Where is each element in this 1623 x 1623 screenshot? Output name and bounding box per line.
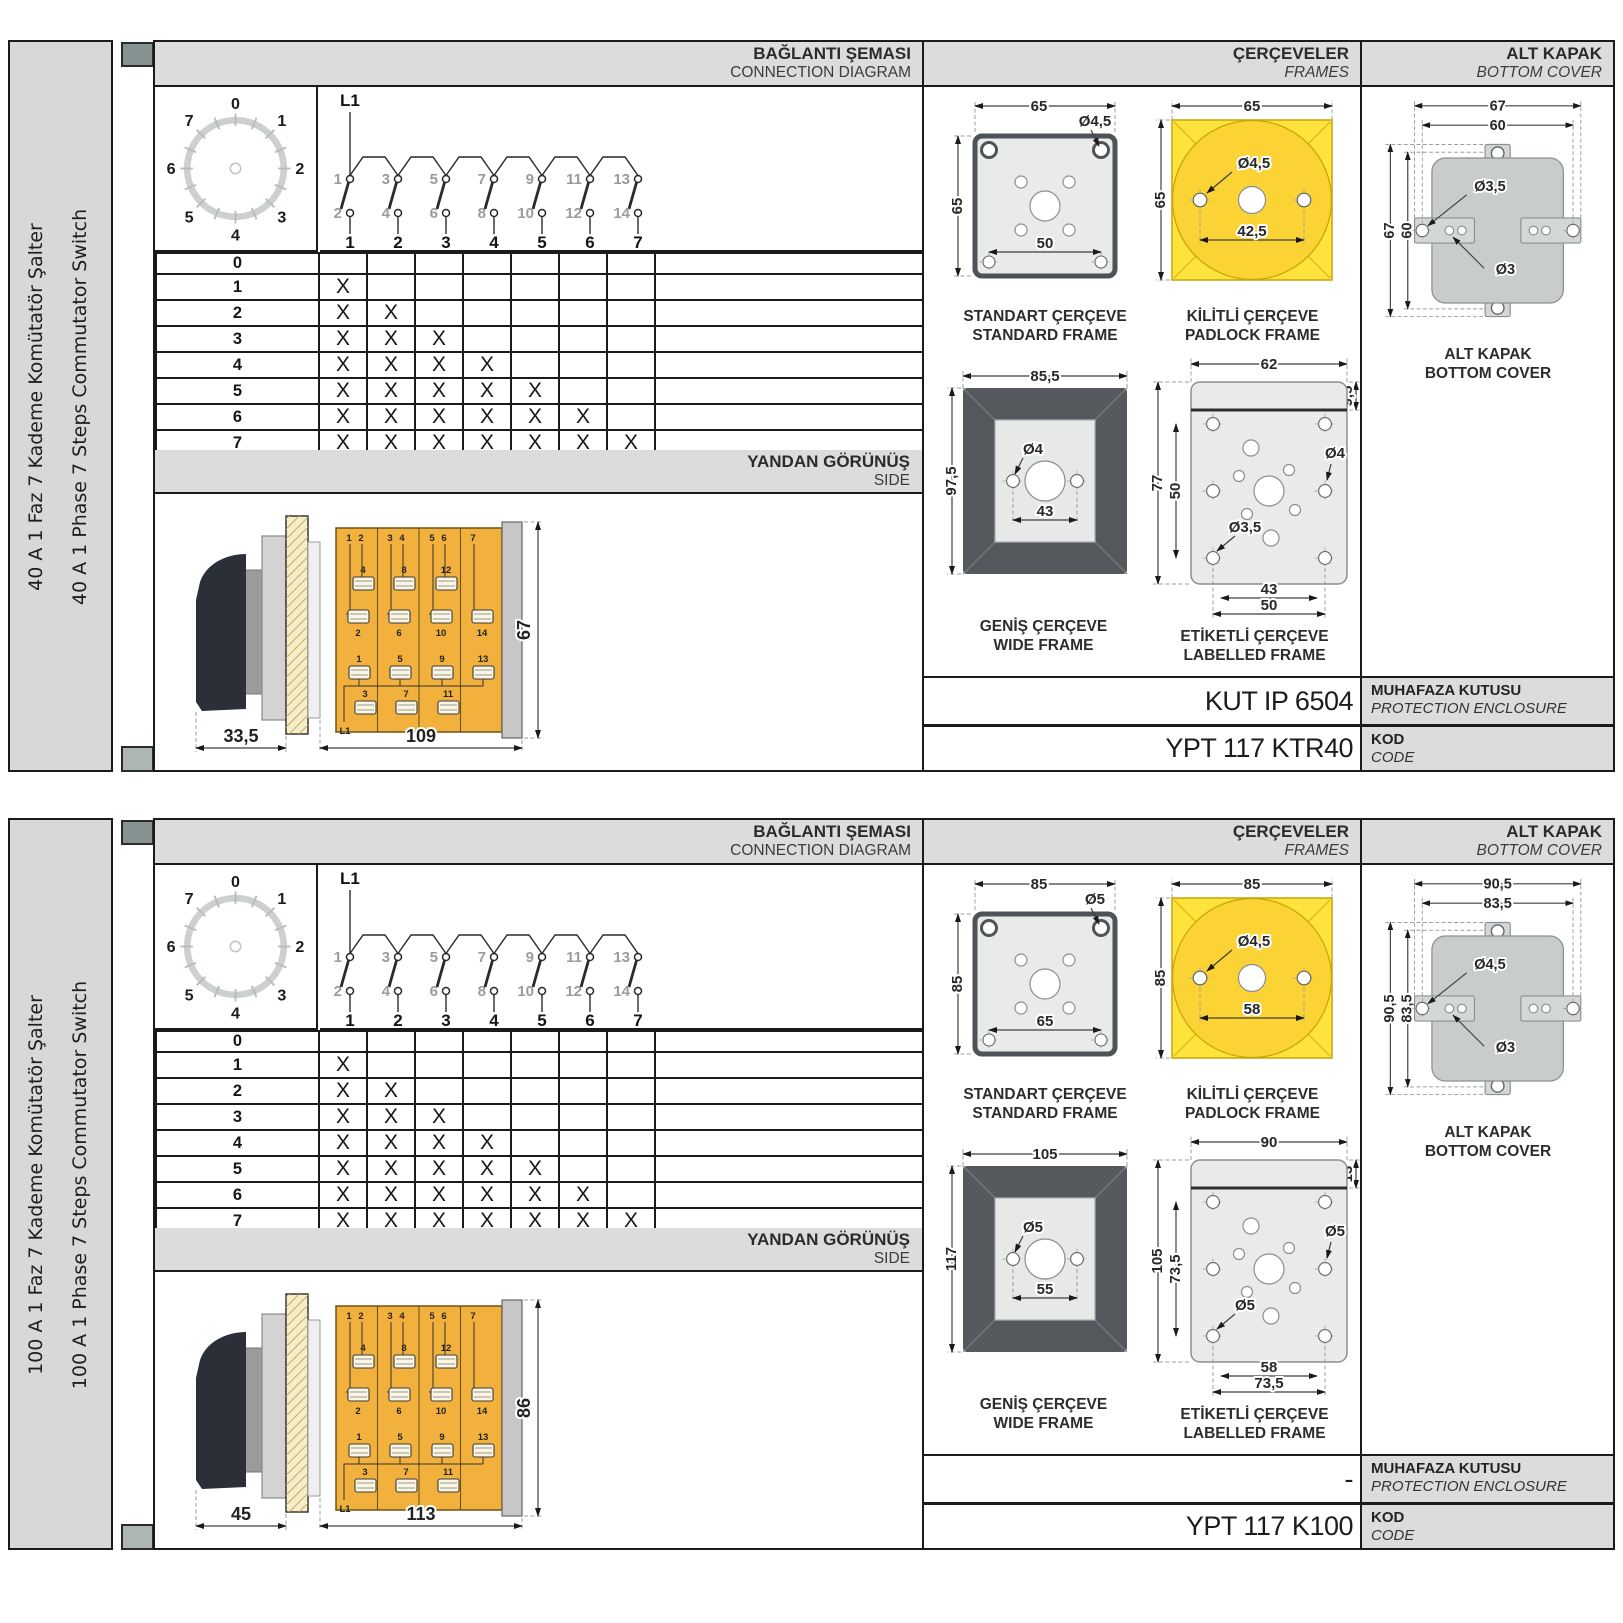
contact-mark-cell: [463, 1052, 511, 1078]
contact-number: 8: [478, 983, 486, 1000]
label-en: PROTECTION ENCLOSURE: [1371, 700, 1613, 718]
circuit-figure: L1 1 2 1: [320, 865, 920, 1027]
contact-number: 13: [613, 171, 630, 188]
contact-mark-cell: X: [511, 404, 559, 430]
protection-enclosure-value: -: [924, 1454, 1360, 1502]
header-title-tr: BAĞLANTI ŞEMASI: [155, 822, 911, 842]
svg-text:5: 5: [397, 1432, 403, 1443]
switch-table-row: 6XXXXXX: [156, 1182, 922, 1208]
hole-span-dim: 73,5: [1254, 1375, 1283, 1392]
frame-caption-tr: GENİŞ ÇERÇEVE: [941, 1395, 1146, 1414]
label-en: CODE: [1371, 749, 1613, 767]
switch-number: 4: [489, 1011, 499, 1027]
switch-pole: 7 8 4: [478, 949, 500, 1027]
header-title-tr: BAĞLANTI ŞEMASI: [155, 44, 911, 64]
body-height-dim: 67: [514, 620, 534, 640]
switch-table-row: 1X: [156, 274, 922, 300]
frame-caption-tr: STANDART ÇERÇEVE: [945, 307, 1145, 326]
svg-text:12: 12: [441, 1343, 452, 1354]
contact-number: 11: [566, 949, 582, 966]
connection-diagram-header: BAĞLANTI ŞEMASI CONNECTION DIAGRAM: [155, 820, 922, 865]
spacer-cell: [655, 1182, 922, 1208]
contact-mark-cell: [559, 253, 607, 274]
contact-mark-cell: X: [511, 1182, 559, 1208]
hole-span-dim: 65: [1037, 1013, 1054, 1030]
contact-mark-cell: [511, 1031, 559, 1052]
contact-mark-cell: X: [367, 1182, 415, 1208]
binding-tab-bottom: [121, 1524, 154, 1550]
frame-width-dim: 105: [1032, 1146, 1057, 1163]
knob-depth-dim: 45: [231, 1504, 251, 1524]
feed-label: L1: [340, 91, 360, 110]
svg-text:7: 7: [403, 1467, 408, 1478]
body-height-dim: 86: [514, 1398, 534, 1418]
contact-mark-cell: X: [319, 300, 367, 326]
product-title-english: 40 A 1 Phase 7 Steps Commutator Switch: [57, 46, 103, 768]
product-title-turkish: 100 A 1 Faz 7 Kademe Komütatör Şalter: [13, 824, 59, 1546]
label-tr: KOD: [1371, 730, 1613, 749]
header-title-en: BOTTOM COVER: [1362, 64, 1602, 82]
contact-mark-cell: X: [367, 300, 415, 326]
contact-mark-cell: [463, 300, 511, 326]
contact-mark-cell: [607, 1031, 655, 1052]
switch-number: 6: [585, 233, 594, 249]
contact-mark-cell: [607, 352, 655, 378]
cover-caption-tr: ALT KAPAK: [1372, 345, 1604, 364]
contact-mark-cell: [607, 326, 655, 352]
contact-mark-cell: [319, 1031, 367, 1052]
switch-table-row: 2XX: [156, 1078, 922, 1104]
pin-number: 2: [358, 1311, 363, 1322]
labelled-frame-block: 90 13 105 73,5: [1147, 1130, 1362, 1444]
step-label: 5: [156, 1156, 319, 1182]
contact-mark-cell: [559, 326, 607, 352]
hole-span-dim: 50: [1261, 597, 1278, 614]
contact-mark-cell: X: [319, 1104, 367, 1130]
frame-width-dim: 65: [1031, 98, 1048, 115]
body-length-dim: 113: [406, 1504, 435, 1524]
switch-pole: 9 10 5: [517, 949, 546, 1027]
protection-enclosure-value: KUT IP 6504: [924, 676, 1360, 724]
switch-table-row: 3XXX: [156, 1104, 922, 1130]
contact-mark-cell: [415, 1031, 463, 1052]
dial-position: 3: [277, 208, 286, 226]
switch-table-row: 0: [156, 1031, 922, 1052]
protection-enclosure-label: MUHAFAZA KUTUSU PROTECTION ENCLOSURE: [1362, 676, 1613, 724]
binding-tab-top: [121, 42, 154, 67]
contact-number: 3: [382, 171, 390, 188]
hole-diameter-label: Ø4,5: [1474, 957, 1505, 973]
contact-mark-cell: X: [463, 1156, 511, 1182]
circuit-cell: L1 1 2 1: [320, 87, 922, 252]
rotary-dial-cell: 0 1 2 3 4 5 6 7: [155, 865, 318, 1030]
switch-table-row: 3XXX: [156, 326, 922, 352]
contact-mark-cell: X: [367, 326, 415, 352]
switch-pole: 1 2 1: [334, 171, 355, 249]
pin-number: 7: [470, 533, 475, 544]
spacer-cell: [655, 1130, 922, 1156]
header-title-en: FRAMES: [924, 842, 1349, 860]
connection-diagram-header: BAĞLANTI ŞEMASI CONNECTION DIAGRAM: [155, 42, 922, 87]
svg-text:14: 14: [477, 1406, 488, 1417]
svg-text:3: 3: [362, 1467, 367, 1478]
frames-header: ÇERÇEVELER FRAMES: [924, 42, 1360, 87]
svg-text:7: 7: [403, 689, 408, 700]
svg-text:4: 4: [360, 565, 366, 576]
svg-text:3: 3: [362, 689, 367, 700]
switch-bezel: [262, 1314, 286, 1498]
frame-height-dim: 65: [949, 198, 966, 215]
contact-mark-cell: [367, 253, 415, 274]
product-title-english: 100 A 1 Phase 7 Steps Commutator Switch: [57, 824, 103, 1546]
contact-mark-cell: X: [559, 404, 607, 430]
spacer-cell: [655, 1156, 922, 1182]
contact-number: 10: [517, 983, 534, 1000]
binding-tab-top: [121, 820, 154, 845]
contact-mark-cell: [511, 326, 559, 352]
switch-knob: [196, 554, 246, 711]
switch-table-row: 5XXXXX: [156, 1156, 922, 1182]
step-label: 2: [156, 1078, 319, 1104]
contact-mark-cell: [559, 274, 607, 300]
header-title-en: BOTTOM COVER: [1362, 842, 1602, 860]
contact-number: 13: [613, 949, 630, 966]
contact-mark-cell: [367, 274, 415, 300]
cover-caption-tr: ALT KAPAK: [1372, 1123, 1604, 1142]
header-title-en: CONNECTION DIAGRAM: [155, 842, 911, 860]
pin-number: 4: [399, 533, 405, 544]
padlock-frame-block: 65 65 Ø4,5 42,5: [1150, 92, 1355, 346]
body-length-dim: 109: [406, 726, 436, 746]
switch-number: 3: [441, 1011, 450, 1027]
standard-frame-figure: 65 65 Ø4,5 50: [945, 92, 1145, 304]
step-label: 4: [156, 352, 319, 378]
contact-mark-cell: X: [367, 1130, 415, 1156]
circuit-figure: L1 1 2 1: [320, 87, 920, 249]
svg-text:14: 14: [477, 628, 488, 639]
svg-text:5: 5: [397, 654, 403, 665]
contact-number: 1: [334, 949, 342, 966]
hole-diameter-label: Ø4,5: [1238, 155, 1271, 172]
svg-text:9: 9: [439, 654, 444, 665]
svg-text:12: 12: [441, 565, 452, 576]
frame-caption-tr: KİLİTLİ ÇERÇEVE: [1150, 307, 1355, 326]
frame-caption-tr: ETİKETLİ ÇERÇEVE: [1147, 627, 1362, 646]
step-label: 3: [156, 326, 319, 352]
standard-frame-block: 85 85 Ø5 65 STANDAR: [945, 870, 1145, 1124]
cover-caption-en: BOTTOM COVER: [1372, 364, 1604, 383]
switch-pole: 11 12 6: [565, 171, 594, 249]
pin-number: 5: [429, 533, 435, 544]
spacer-cell: [655, 1078, 922, 1104]
hole-diameter-label: Ø3: [1496, 262, 1515, 278]
header-title-tr: ÇERÇEVELER: [924, 822, 1349, 842]
svg-text:6: 6: [396, 628, 401, 639]
contact-mark-cell: [415, 253, 463, 274]
contact-mark-cell: [511, 1052, 559, 1078]
step-label: 6: [156, 1182, 319, 1208]
contact-mark-cell: X: [415, 404, 463, 430]
switch-table-row: 6XXXXXX: [156, 404, 922, 430]
contact-mark-cell: [511, 253, 559, 274]
pin-number: 2: [358, 533, 363, 544]
svg-text:8: 8: [401, 565, 406, 576]
dial-position: 6: [167, 160, 176, 178]
switch-number: 5: [537, 1011, 546, 1027]
frame-height-dim: 117: [943, 1247, 960, 1271]
contact-mark-cell: X: [463, 378, 511, 404]
step-label: 3: [156, 1104, 319, 1130]
contact-mark-cell: [415, 1052, 463, 1078]
pin-number: 1: [346, 1311, 352, 1322]
contact-mark-cell: [607, 1156, 655, 1182]
switch-pole: 9 10 5: [517, 171, 546, 249]
label-tr: MUHAFAZA KUTUSU: [1371, 681, 1613, 700]
svg-text:2: 2: [355, 1406, 360, 1417]
dial-position: 3: [277, 986, 286, 1004]
frame-width-dim: 90: [1261, 1134, 1278, 1151]
pin-number: 5: [429, 1311, 435, 1322]
frame-caption-en: LABELLED FRAME: [1147, 646, 1362, 665]
contact-mark-cell: X: [415, 326, 463, 352]
contact-mark-cell: [607, 1104, 655, 1130]
contact-mark-cell: [559, 1031, 607, 1052]
contact-mark-cell: [607, 1078, 655, 1104]
frame-height-dim: 65: [1152, 192, 1169, 209]
frames-header: ÇERÇEVELER FRAMES: [924, 820, 1360, 865]
contact-mark-cell: [559, 1078, 607, 1104]
labelled-frame-figure: 90 13 105 73,5: [1147, 1130, 1362, 1402]
side-view-figure: 1 2 3 4 5 6 7 4 8 12: [163, 1276, 593, 1540]
contact-number: 6: [430, 983, 438, 1000]
spacer-cell: [655, 1031, 922, 1052]
contact-number: 14: [613, 983, 630, 1000]
frame-width-dim: 85,5: [1030, 368, 1059, 385]
hole-span-dim: 55: [1037, 1281, 1054, 1298]
switch-pole: 5 6 3: [430, 949, 451, 1027]
dial-position: 0: [231, 873, 240, 891]
spacer-cell: [655, 352, 922, 378]
svg-text:9: 9: [439, 1432, 444, 1443]
contact-number: 8: [478, 205, 486, 222]
label-tr: MUHAFAZA KUTUSU: [1371, 1459, 1613, 1478]
product-code-value: YPT 117 K100: [924, 1502, 1360, 1548]
contact-mark-cell: X: [319, 1078, 367, 1104]
dial-position: 2: [295, 938, 304, 956]
contact-mark-cell: X: [511, 378, 559, 404]
contact-mark-cell: [463, 1078, 511, 1104]
contact-mark-cell: [559, 352, 607, 378]
contact-mark-cell: [415, 300, 463, 326]
contact-mark-cell: [463, 1031, 511, 1052]
switch-number: 2: [393, 233, 402, 249]
frame-width-dim: 65: [1244, 98, 1261, 115]
spacer-cell: [655, 300, 922, 326]
contact-mark-cell: [367, 1031, 415, 1052]
contact-number: 10: [517, 205, 534, 222]
wide-frame-block: 85,5 97,5 Ø4 43: [941, 362, 1146, 656]
header-title-en: SIDE: [155, 472, 910, 490]
bottom-cover-block: 90,5 83,5 90,5 83,5: [1372, 870, 1604, 1162]
dial-position: 6: [167, 938, 176, 956]
svg-text:11: 11: [443, 1467, 454, 1478]
contact-mark-cell: [607, 1130, 655, 1156]
pin-number: 3: [387, 1311, 392, 1322]
pin-number: 4: [399, 1311, 405, 1322]
frame-width-dim: 85: [1244, 876, 1261, 893]
pin-number: 6: [441, 533, 446, 544]
contact-mark-cell: X: [463, 404, 511, 430]
contact-mark-cell: X: [367, 404, 415, 430]
switch-number: 2: [393, 1011, 402, 1027]
dial-position: 7: [185, 112, 194, 130]
contact-mark-cell: [415, 1078, 463, 1104]
frame-height-dim: 97,5: [943, 466, 960, 495]
hole-diameter-label: Ø4,5: [1238, 933, 1271, 950]
frame-caption-tr: KİLİTLİ ÇERÇEVE: [1150, 1085, 1355, 1104]
svg-text:13: 13: [478, 654, 489, 665]
frame-width-dim: 85: [1031, 876, 1048, 893]
contact-mark-cell: [463, 1104, 511, 1130]
contact-number: 5: [430, 949, 438, 966]
panel-content: BAĞLANTI ŞEMASI CONNECTION DIAGRAM ÇERÇE…: [153, 818, 1615, 1550]
step-label: 0: [156, 1031, 319, 1052]
frame-caption-en: WIDE FRAME: [941, 636, 1146, 655]
hole-span-dim: 43: [1037, 503, 1054, 520]
hole-diameter-label: Ø4: [1023, 441, 1044, 458]
hole-diameter-label: Ø4: [1325, 445, 1346, 462]
contact-mark-cell: [559, 378, 607, 404]
dial-position: 2: [295, 160, 304, 178]
product-panel: 100 A 1 Faz 7 Kademe Komütatör Şalter 10…: [8, 818, 1615, 1550]
header-title-tr: YANDAN GÖRÜNÜŞ: [155, 452, 910, 472]
contact-mark-cell: X: [463, 1130, 511, 1156]
switch-number: 7: [633, 1011, 642, 1027]
contact-mark-cell: X: [415, 1182, 463, 1208]
contact-mark-cell: X: [367, 352, 415, 378]
binding-tab-bottom: [121, 746, 154, 772]
contact-mark-cell: [511, 300, 559, 326]
contact-number: 6: [430, 205, 438, 222]
switch-number: 1: [345, 1011, 354, 1027]
hole-diameter-label: Ø3: [1496, 1040, 1515, 1056]
contact-mark-cell: [607, 253, 655, 274]
frame-caption-en: WIDE FRAME: [941, 1414, 1146, 1433]
contact-mark-cell: X: [463, 1182, 511, 1208]
dial-position: 7: [185, 890, 194, 908]
contact-mark-cell: [511, 1130, 559, 1156]
header-title-en: CONNECTION DIAGRAM: [155, 64, 911, 82]
svg-text:6: 6: [396, 1406, 401, 1417]
switch-number: 1: [345, 233, 354, 249]
column-divider: [922, 820, 924, 1548]
side-view-header: YANDAN GÖRÜNÜŞ SIDE: [155, 1228, 922, 1272]
svg-text:2: 2: [355, 628, 360, 639]
contact-mark-cell: [319, 253, 367, 274]
switch-pole: 1 2 1: [334, 949, 355, 1027]
contact-mark-cell: [607, 1182, 655, 1208]
contact-mark-cell: X: [415, 352, 463, 378]
contact-state-table: 01X2XX3XXX4XXXX5XXXXX6XXXXXX7XXXXXXX: [155, 1030, 922, 1235]
spacer-cell: [655, 378, 922, 404]
contact-mark-cell: [367, 1052, 415, 1078]
contact-mark-cell: [607, 300, 655, 326]
contact-mark-cell: X: [463, 352, 511, 378]
contact-number: 12: [565, 205, 582, 222]
step-label: 4: [156, 1130, 319, 1156]
wide-frame-figure: 105 117 Ø5 55: [941, 1140, 1146, 1392]
bottom-cover-figure: 90,5 83,5 90,5 83,5: [1372, 870, 1604, 1120]
svg-text:11: 11: [443, 689, 454, 700]
code-label: KOD CODE: [1362, 1502, 1613, 1548]
hole-span-dim: 43: [1261, 581, 1278, 598]
spacer-cell: [655, 404, 922, 430]
contact-mark-cell: X: [319, 1130, 367, 1156]
contact-mark-cell: X: [415, 378, 463, 404]
contact-number: 7: [478, 949, 486, 966]
contact-number: 7: [478, 171, 486, 188]
frame-caption-en: LABELLED FRAME: [1147, 1424, 1362, 1443]
contact-mark-cell: X: [415, 1104, 463, 1130]
feed-label: L1: [339, 1504, 351, 1515]
contact-mark-cell: X: [511, 1156, 559, 1182]
padlock-frame-figure: 65 65 Ø4,5 42,5: [1150, 92, 1355, 304]
bottom-cover-figure: 67 60 67 60: [1372, 92, 1604, 342]
switch-table-row: 1X: [156, 1052, 922, 1078]
header-title-en: SIDE: [155, 1250, 910, 1268]
contact-number: 9: [526, 949, 534, 966]
dial-position: 5: [185, 208, 194, 226]
switch-pole: 3 4 2: [382, 171, 403, 249]
cover-caption-en: BOTTOM COVER: [1372, 1142, 1604, 1161]
switch-number: 6: [585, 1011, 594, 1027]
dial-position: 4: [231, 1004, 240, 1022]
step-label: 1: [156, 1052, 319, 1078]
contact-mark-cell: [559, 1130, 607, 1156]
bottom-cover-block: 67 60 67 60: [1372, 92, 1604, 384]
frame-caption-tr: STANDART ÇERÇEVE: [945, 1085, 1145, 1104]
contact-mark-cell: [511, 1078, 559, 1104]
switch-knob: [196, 1332, 246, 1489]
hole-diameter-label: Ø5: [1085, 891, 1105, 908]
svg-text:1: 1: [356, 654, 362, 665]
cover-outer-height-dim: 67: [1382, 222, 1398, 238]
header-title-tr: ÇERÇEVELER: [924, 44, 1349, 64]
hole-span-dim: 50: [1037, 235, 1054, 252]
hole-span-dim: 58: [1244, 1001, 1261, 1018]
side-view-figure: 1 2 3 4 5 6 7 4 8 12: [163, 498, 593, 762]
feed-label: L1: [340, 869, 360, 888]
frame-caption-tr: ETİKETLİ ÇERÇEVE: [1147, 1405, 1362, 1424]
switch-table-row: 4XXXX: [156, 1130, 922, 1156]
switch-pole: 13 14 7: [613, 949, 642, 1027]
switch-bezel: [262, 536, 286, 720]
frame-height-dim: 77: [1149, 475, 1166, 492]
labelled-frame-block: 62 9,5 77 50: [1147, 352, 1362, 666]
dial-position: 4: [231, 226, 240, 244]
spacer-cell: [655, 1052, 922, 1078]
contact-mark-cell: X: [319, 352, 367, 378]
wide-frame-block: 105 117 Ø5 55: [941, 1140, 1146, 1434]
switch-pole: 5 6 3: [430, 171, 451, 249]
rotary-dial-cell: 0 1 2 3 4 5 6 7: [155, 87, 318, 252]
frame-height-dim: 85: [1152, 970, 1169, 987]
code-label: KOD CODE: [1362, 724, 1613, 770]
panel-content: BAĞLANTI ŞEMASI CONNECTION DIAGRAM ÇERÇE…: [153, 40, 1615, 772]
padlock-frame-block: 85 85 Ø4,5 58: [1150, 870, 1355, 1124]
switch-number: 3: [441, 233, 450, 249]
standard-frame-block: 65 65 Ø4,5 50 STAND: [945, 92, 1145, 346]
